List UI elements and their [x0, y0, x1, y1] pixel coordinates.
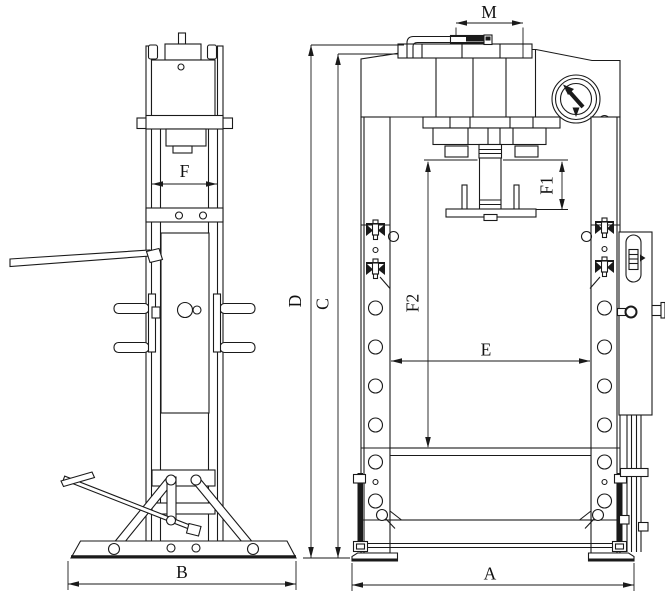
- dim-label-b: B: [176, 562, 188, 582]
- pressure-gauge-icon: [552, 75, 600, 123]
- left-column: [361, 117, 390, 553]
- technical-drawing-page: F B: [0, 0, 665, 600]
- dim-label-d: D: [285, 295, 305, 308]
- hinge-strip: [617, 473, 623, 551]
- table-knob: [178, 303, 193, 318]
- side-upper-crossbar: [137, 116, 233, 130]
- ram-nose: [479, 145, 502, 159]
- dim-label-f2: F2: [403, 294, 423, 312]
- side-base: [71, 541, 296, 558]
- right-column: [591, 117, 620, 553]
- pivot: [167, 516, 176, 525]
- dim-label-c: C: [313, 298, 333, 310]
- rod-clevis: [621, 469, 649, 477]
- base-hole: [167, 544, 175, 552]
- pivot: [191, 475, 201, 485]
- hinge-strip: [358, 473, 364, 551]
- pump-pin: [626, 307, 637, 318]
- pivot: [166, 475, 176, 485]
- press-technical-drawing: F B: [0, 0, 665, 600]
- handle-grip: [466, 37, 485, 42]
- dim-label-f1: F1: [537, 176, 557, 194]
- strut-foot-pivot: [109, 544, 120, 555]
- base-hole: [192, 544, 200, 552]
- filler-plug: [179, 33, 186, 44]
- guide-pin: [514, 185, 519, 211]
- dim-label-f: F: [180, 161, 190, 181]
- strut-foot-pivot: [248, 544, 259, 555]
- dim-label-m: M: [481, 2, 497, 22]
- side-lower-crossbar: [146, 208, 223, 222]
- table-pin: [114, 343, 149, 353]
- table-pin: [114, 304, 149, 314]
- dim-label-a: A: [484, 564, 497, 584]
- table-pin: [220, 304, 255, 314]
- dim-label-e: E: [481, 340, 492, 360]
- lift-pin: [377, 510, 388, 521]
- guide-pin: [462, 185, 467, 211]
- top-plate: [398, 44, 532, 58]
- table-pin: [220, 343, 255, 353]
- release-valve: [652, 306, 661, 316]
- lift-pin: [593, 510, 604, 521]
